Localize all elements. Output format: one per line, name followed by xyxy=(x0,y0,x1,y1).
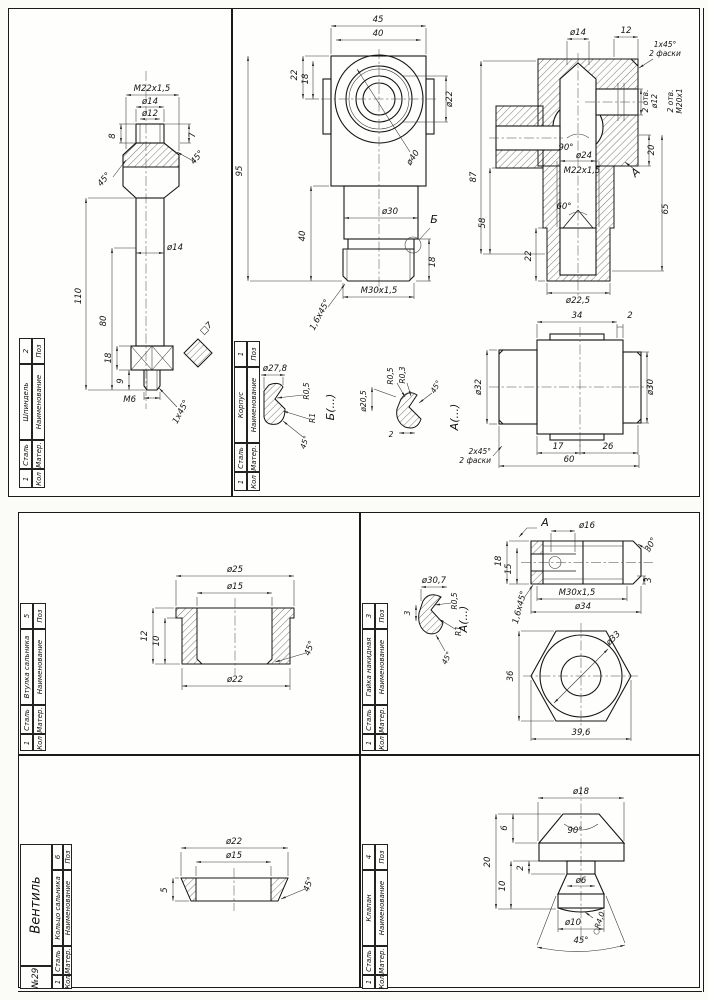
dim-label: 3 xyxy=(403,610,412,615)
sheet-frame-bottom xyxy=(18,991,702,992)
tb-mater-header: Матер. xyxy=(375,705,388,734)
dim-label: 15 xyxy=(504,564,514,575)
tb-name-value: Клапан xyxy=(362,870,375,946)
dim-label: ø30,7 xyxy=(421,576,447,586)
tb-pos-value: 3 xyxy=(362,603,375,629)
capnut-labels: А ø16 18 15 1,6x45° M30x1,5 ø34 30° 3 xyxy=(494,516,659,625)
dim-label: □7 xyxy=(198,320,215,337)
dim-label: 2x45° xyxy=(468,447,491,456)
dim-label: 36 xyxy=(506,670,516,681)
tb-mater-value: Сталь xyxy=(362,946,375,975)
tb-qty-header: Кол xyxy=(247,472,260,491)
body-front-labels: 45 40 22 18 ø22 ø40 95 ø30 40 18 Б M30x1… xyxy=(235,15,455,332)
dim-label: M6 xyxy=(123,395,136,405)
dim-label: 26 xyxy=(603,442,614,452)
valve-geometry xyxy=(539,786,624,941)
dim-label: 12 xyxy=(140,631,150,642)
valve-labels: ø18 90° 6 20 10 2 ø6 ø10 ○R4,0 45° xyxy=(483,787,607,946)
dim-label: ø30 xyxy=(381,207,398,217)
dim-label: 2 фаски xyxy=(459,456,491,465)
dim-label: 18 xyxy=(104,352,114,363)
dim-label: 18 xyxy=(428,256,438,267)
dim-label: 2 xyxy=(389,430,394,439)
dim-label: ø6 xyxy=(575,876,587,886)
tb-mater-value: Сталь xyxy=(52,946,63,975)
dim-label: M30x1,5 xyxy=(559,588,596,598)
dim-label: 45° xyxy=(303,640,318,658)
dim-label: 3 xyxy=(644,577,654,582)
dim-label: 58 xyxy=(478,217,488,228)
dim-label: 1x45° xyxy=(171,398,192,425)
dim-label: ø14 xyxy=(141,97,158,107)
capnut-detail-a: ø30,7 R0,5 R1 3 45° А(...) xyxy=(403,576,470,666)
dim-label: ø12 xyxy=(141,109,158,119)
dim-label: 60 xyxy=(564,455,575,465)
dim-label: M30x1,5 xyxy=(361,286,398,296)
dim-label: 45° xyxy=(573,936,588,946)
dim-label: R0,5 xyxy=(386,367,395,384)
tb-pos-header: Поз xyxy=(375,603,388,629)
dim-label: 1,6x45° xyxy=(308,298,333,332)
body-side-dimensions xyxy=(487,322,649,468)
panel-body: 45 40 22 18 ø22 ø40 95 ø30 40 18 Б M30x1… xyxy=(232,8,700,497)
dim-label: 12 xyxy=(621,26,632,36)
bushing-labels: ø25 ø15 12 10 ø22 45° xyxy=(140,565,317,685)
tb-pos-value: 4 xyxy=(362,844,375,870)
tb-qty-value: 1 xyxy=(20,734,33,751)
dim-label: 60° xyxy=(556,202,571,212)
body-section-geometry xyxy=(489,53,645,299)
dim-label: ø22 xyxy=(445,91,455,108)
dim-label: 10 xyxy=(152,636,162,647)
tb-name-header: Наименование xyxy=(247,367,260,443)
capnut-drawing: А ø16 18 15 1,6x45° M30x1,5 ø34 30° 3 ø3… xyxy=(361,513,699,753)
dim-label: 40 xyxy=(373,29,384,39)
dim-label: ø15 xyxy=(226,582,243,592)
titleblock-ring: Вентиль №29 6 Поз Кольцо сальника Наимен… xyxy=(20,844,72,989)
dim-label: 8 xyxy=(108,133,118,139)
sheet-number: №29 xyxy=(20,966,52,989)
dim-label: ø12 xyxy=(650,94,659,109)
tb-qty-header: Кол xyxy=(33,734,46,751)
valve-drawing: ø18 90° 6 20 10 2 ø6 ø10 ○R4,0 45° xyxy=(361,756,699,986)
tb-pos-header: Поз xyxy=(33,603,46,629)
dim-label: ø22 xyxy=(226,675,243,685)
panel-capnut: А ø16 18 15 1,6x45° M30x1,5 ø34 30° 3 ø3… xyxy=(360,512,700,755)
tb-name-value: Втулка сальника xyxy=(20,629,33,705)
dim-label: ø34 xyxy=(574,602,591,612)
dim-label: 9 xyxy=(116,378,126,383)
tb-qty-value: 1 xyxy=(234,472,247,491)
body-front-geometry xyxy=(321,49,437,291)
dim-label: 17 xyxy=(553,442,564,452)
tb-pos-header: Поз xyxy=(247,341,260,367)
section-callout: А xyxy=(540,516,549,529)
tb-pos-header: Поз xyxy=(63,844,72,870)
dim-label: 34 xyxy=(572,311,583,321)
tb-pos-value: 2 xyxy=(19,338,32,364)
tb-qty-value: 1 xyxy=(362,734,375,751)
tb-name-header: Наименование xyxy=(375,629,388,705)
dim-label: ø24 xyxy=(575,151,592,161)
dim-label: 40 xyxy=(298,231,308,242)
tb-mater-header: Матер. xyxy=(32,440,45,469)
capnut-hex-view: 36 ø33 39,6 xyxy=(506,623,639,741)
dim-label: ø16 xyxy=(578,521,596,531)
tb-qty-header: Кол xyxy=(32,469,45,488)
dim-label: 90° xyxy=(558,143,573,153)
dim-label: ø22 xyxy=(225,837,242,847)
dim-label: 22 xyxy=(290,70,300,81)
panel-ring: ø22 ø15 5 45° Вентиль №29 6 Поз Кольцо с… xyxy=(18,755,360,988)
dim-label: 110 xyxy=(74,288,84,304)
dim-label: ø20,5 xyxy=(359,390,368,413)
tb-mater-value: Сталь xyxy=(362,705,375,734)
dim-label: M22x1,5 xyxy=(564,166,601,176)
detail-callout: Б xyxy=(430,213,438,226)
dim-label: ø14 xyxy=(166,243,183,253)
dim-label: R0,5 xyxy=(302,382,311,399)
dim-label: M20x1 xyxy=(675,88,684,113)
tb-qty-header: Кол xyxy=(375,734,388,751)
dim-label: 2 фаски xyxy=(649,49,681,58)
dim-label: 22 xyxy=(524,251,534,262)
dim-label: ø10 xyxy=(564,918,581,928)
section-callout: А xyxy=(628,165,643,180)
dim-label: 2 xyxy=(627,311,632,321)
tb-mater-header: Матер. xyxy=(375,946,388,975)
dim-label: M22x1,5 xyxy=(134,84,171,94)
titleblock-bushing: 5 Поз Втулка сальника Наименование Сталь… xyxy=(20,603,46,751)
dim-label: 80 xyxy=(99,316,109,327)
tb-pos-header: Поз xyxy=(32,338,45,364)
titleblock-capnut: 3 Поз Гайка накидная Наименование Сталь … xyxy=(362,603,388,751)
dim-label: ø15 xyxy=(225,851,242,861)
dim-label: 45° xyxy=(440,650,454,666)
tb-pos-header: Поз xyxy=(375,844,388,870)
dim-label: 20 xyxy=(647,145,657,156)
dim-label: 65 xyxy=(661,204,671,215)
body-drawing: 45 40 22 18 ø22 ø40 95 ø30 40 18 Б M30x1… xyxy=(233,9,699,495)
dim-label: 2 xyxy=(516,865,526,870)
dim-label: 10 xyxy=(498,881,508,892)
titleblock-valve: 4 Поз Клапан Наименование Сталь Матер. 1… xyxy=(362,844,388,989)
dim-label: 39,6 xyxy=(572,728,592,738)
tb-qty-header: Кол xyxy=(375,975,388,989)
tb-name-value: Кольцо сальника xyxy=(52,870,63,946)
tb-name-header: Наименование xyxy=(375,870,388,946)
dim-label: ø27,8 xyxy=(262,364,288,374)
dim-label: ø25 xyxy=(226,565,243,575)
dim-label: ø40 xyxy=(404,148,422,168)
dim-label: 18 xyxy=(301,73,311,84)
tb-pos-value: 6 xyxy=(52,844,63,870)
tb-qty-header: Кол xyxy=(63,975,72,989)
tb-mater-header: Матер. xyxy=(247,443,260,472)
tb-pos-value: 1 xyxy=(234,341,247,367)
dim-label: ø14 xyxy=(569,28,586,38)
spindle-geometry xyxy=(123,71,212,409)
dim-label: 45° xyxy=(429,379,444,395)
dim-label: 18 xyxy=(494,555,504,566)
detail-title: Б(...) xyxy=(324,394,337,421)
tb-name-header: Наименование xyxy=(32,364,45,440)
tb-name-value: Шпиндель xyxy=(19,364,32,440)
bushing-drawing: ø25 ø15 12 10 ø22 45° xyxy=(19,513,359,753)
detail-title: А(...) xyxy=(448,404,461,432)
body-side-geometry xyxy=(489,327,653,449)
titleblock-spindle: 2 Поз Шпиндель Наименование Сталь Матер.… xyxy=(19,338,45,488)
assembly-title: Вентиль xyxy=(20,844,52,966)
dim-label: 45 xyxy=(373,15,384,25)
dim-label: 95 xyxy=(235,166,245,177)
tb-name-header: Наименование xyxy=(63,870,72,946)
detail-title: А(...) xyxy=(457,606,470,634)
dim-label: 2 отв. xyxy=(641,90,650,113)
titleblock-body: 1 Поз Корпус Наименование Сталь Матер. 1… xyxy=(234,341,260,491)
capnut-geometry xyxy=(519,528,653,584)
dim-label: 1x45° xyxy=(654,40,677,49)
dim-label: R1 xyxy=(308,413,317,423)
tb-mater-value: Сталь xyxy=(20,705,33,734)
panel-valve: ø18 90° 6 20 10 2 ø6 ø10 ○R4,0 45° 4 Поз… xyxy=(360,755,700,988)
dim-label: 90° xyxy=(567,826,582,836)
ring-geometry xyxy=(181,868,288,911)
tb-qty-value: 1 xyxy=(52,975,63,989)
dim-label: 6 xyxy=(500,825,510,831)
spindle-labels: M22x1,5 ø14 ø12 8 7 45° 45° ø14 110 80 1… xyxy=(74,84,215,426)
body-detail-a: ø20,5 R0,5 R0,3 45° 2 А(...) xyxy=(359,366,461,439)
tb-name-value: Гайка накидная xyxy=(362,629,375,705)
tb-mater-header: Матер. xyxy=(33,705,46,734)
dim-label: 45° xyxy=(96,171,113,189)
dim-label: 5 xyxy=(160,887,170,892)
dim-label: 7 xyxy=(188,132,198,138)
tb-mater-header: Матер. xyxy=(63,946,72,975)
dim-label: ø18 xyxy=(572,787,590,797)
panel-spindle: M22x1,5 ø14 ø12 8 7 45° 45° ø14 110 80 1… xyxy=(8,8,232,497)
bushing-geometry xyxy=(176,598,294,675)
dim-label: 45° xyxy=(298,434,311,450)
dim-label: ø32 xyxy=(474,379,484,396)
dim-label: ø30 xyxy=(646,379,656,396)
drawing-sheet: M22x1,5 ø14 ø12 8 7 45° 45° ø14 110 80 1… xyxy=(0,0,708,1000)
dim-label: 45° xyxy=(189,149,206,167)
sheet-frame-right xyxy=(703,8,704,992)
dim-label: 2 отв. xyxy=(666,90,675,113)
dim-label: 30° xyxy=(643,536,659,554)
tb-mater-value: Сталь xyxy=(234,443,247,472)
dim-label: ø22,5 xyxy=(565,296,590,306)
dim-label: 87 xyxy=(469,171,479,182)
tb-pos-value: 5 xyxy=(20,603,33,629)
tb-name-header: Наименование xyxy=(33,629,46,705)
dim-label: R0,3 xyxy=(398,366,407,383)
tb-qty-value: 1 xyxy=(19,469,32,488)
dim-label: 1,6x45° xyxy=(511,590,529,625)
tb-qty-value: 1 xyxy=(362,975,375,989)
panel-bushing: ø25 ø15 12 10 ø22 45° 5 Поз Втулка сальн… xyxy=(18,512,360,755)
tb-name-value: Корпус xyxy=(234,367,247,443)
dim-label: 45° xyxy=(302,876,317,894)
tb-mater-value: Сталь xyxy=(19,440,32,469)
dim-label: 20 xyxy=(483,857,493,868)
